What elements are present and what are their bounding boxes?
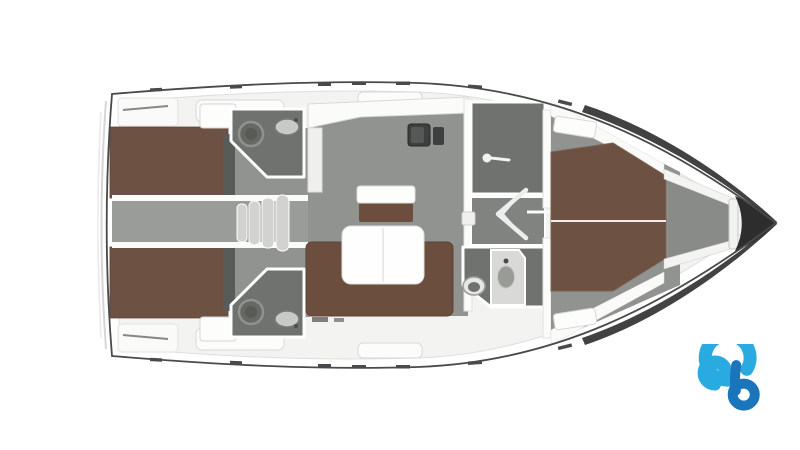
- shower-arm: [491, 158, 509, 160]
- transom-arc: [102, 101, 107, 349]
- salon: [306, 97, 468, 322]
- nav-seat-top: [357, 186, 415, 203]
- sink-icon: [498, 266, 515, 288]
- faucet-icon: [504, 259, 509, 264]
- boataround-logo: [694, 344, 782, 432]
- fwd-bulkhead: [543, 110, 551, 208]
- yacht-floorplan: [0, 0, 800, 450]
- stove-icon: [433, 127, 444, 145]
- faucet-icon: [294, 324, 298, 328]
- double-berth: [110, 127, 228, 198]
- companionway: [112, 195, 310, 251]
- nav-seat-base: [359, 203, 413, 222]
- v-berth: [551, 143, 666, 291]
- nav-seat: [357, 186, 415, 222]
- vent-icon: [334, 318, 344, 322]
- faucet-icon: [294, 118, 298, 122]
- vent-icon: [312, 317, 328, 322]
- fwd-bulkhead: [543, 238, 551, 338]
- galley-cabinet: [308, 128, 322, 192]
- sink-basin: [411, 127, 424, 143]
- double-berth: [110, 247, 228, 318]
- bow-bulkhead: [729, 199, 738, 249]
- toilet-bowl: [245, 128, 257, 140]
- page: { "page": { "background": "#ffffff" }, "…: [0, 0, 800, 450]
- toilet-bowl: [468, 282, 480, 292]
- toilet-bowl: [245, 306, 257, 318]
- panel-icon: [462, 212, 475, 225]
- logo-swoosh: [704, 344, 750, 384]
- logo-b-bowl: [733, 384, 755, 406]
- shower-room: [471, 102, 545, 194]
- shower-cabin: [471, 102, 545, 194]
